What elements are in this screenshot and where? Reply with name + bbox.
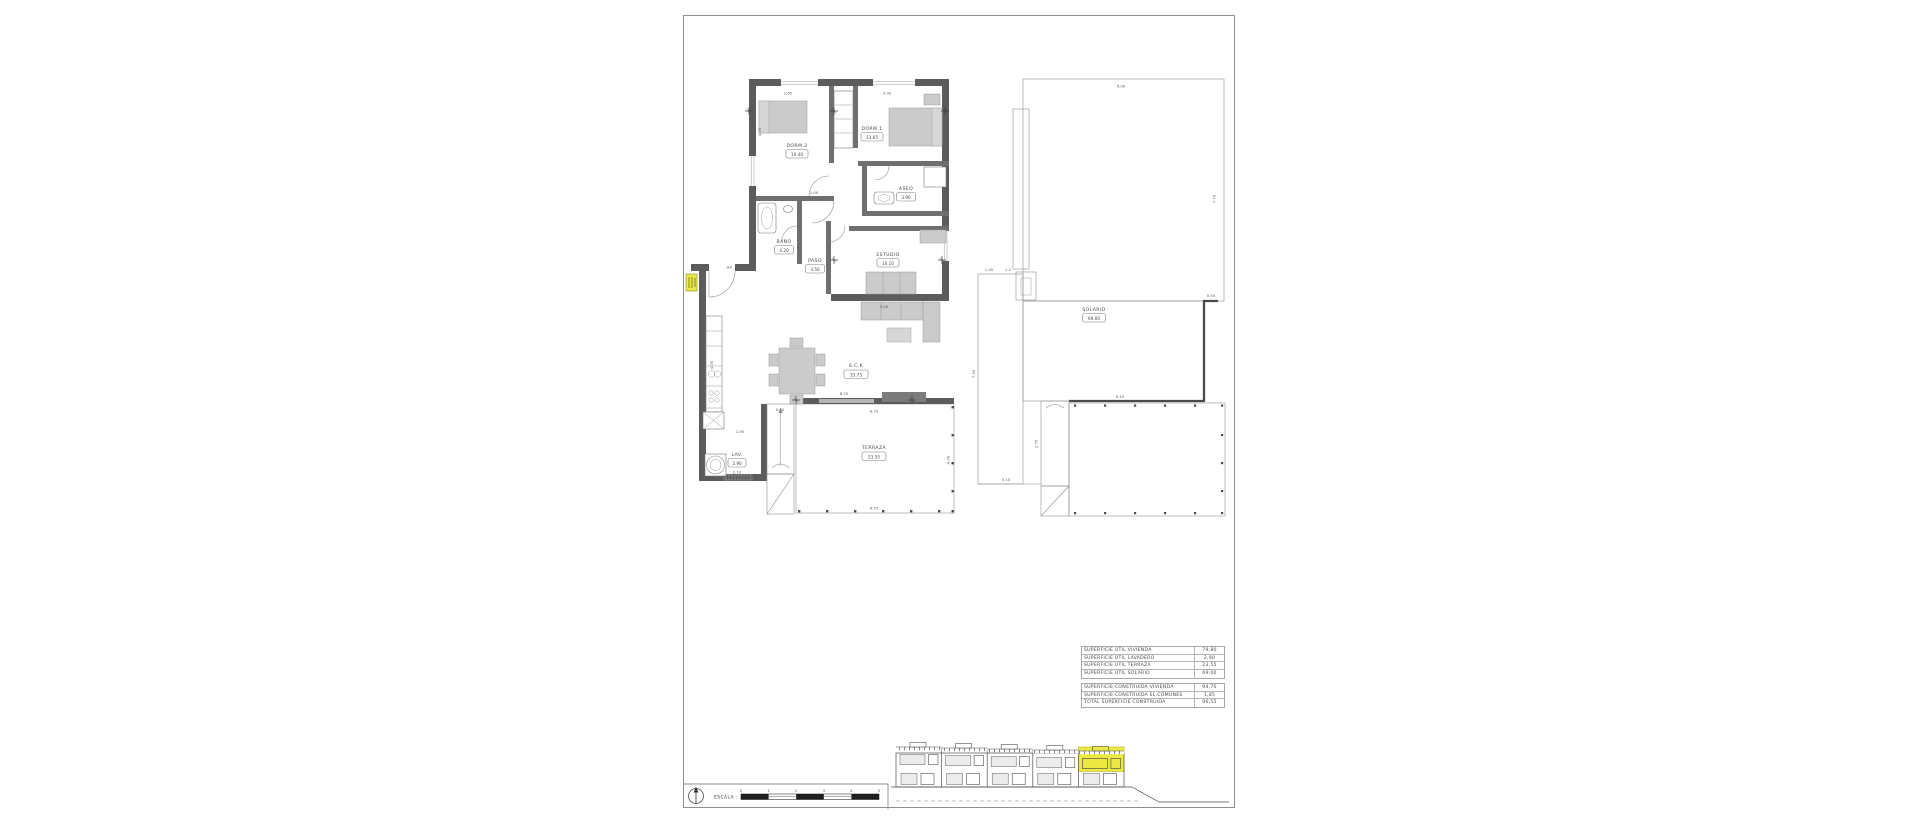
svg-text:4.20: 4.20: [779, 248, 789, 253]
street-elevation: [891, 743, 1229, 803]
drawing-sheet: DORM.2 10.40 DORM.1 13.65 ASEO 3.90: [683, 15, 1235, 808]
dim-estudio-bottom: 3.05: [880, 304, 889, 309]
lavadero-fixtures: [703, 412, 726, 476]
solario-left-strip: [978, 274, 1023, 484]
scale-bar-block: ESCALA : 0 1 2 3 4 5: [684, 784, 888, 809]
table-row: SUPERFICIE ÚTIL VIVIENDA 79,80: [1082, 647, 1224, 655]
svg-text:3.90: 3.90: [901, 195, 911, 200]
left-floor-plan: DORM.2 10.40 DORM.1 13.65 ASEO 3.90: [686, 79, 954, 514]
dim-dorm2-depth: 4.05: [757, 127, 762, 136]
table-superficie-construida: SUPERFICIE CONSTRUIDA VIVIENDA 94,70 SUP…: [1081, 683, 1225, 708]
svg-text:LAV.: LAV.: [731, 452, 742, 458]
svg-text:3: 3: [823, 788, 826, 793]
chimney-box: [1016, 272, 1036, 300]
kitchen-counter: [706, 316, 722, 428]
dim-parapet: 0.50: [1207, 293, 1216, 298]
window-top-right: [873, 79, 915, 86]
room-label-terraza: TERRAZA 23.55: [861, 445, 887, 461]
svg-text:BAÑO: BAÑO: [777, 238, 792, 245]
svg-text:TERRAZA: TERRAZA: [861, 445, 887, 451]
dim-roof-top: 6.90: [1117, 84, 1126, 89]
svg-text:33.75: 33.75: [850, 372, 862, 377]
svg-text:0: 0: [740, 788, 743, 793]
table-row: SUPERFICIE ÚTIL SOLARIO 69,00: [1082, 670, 1224, 678]
north-arrow-icon: [689, 787, 704, 804]
entry-unit-marker: [686, 274, 697, 291]
table-row: SUPERFICIE ÚTIL TERRAZA 23,55: [1082, 662, 1224, 670]
dim-sck-bottom: 6.70: [840, 391, 849, 396]
svg-text:1: 1: [767, 788, 770, 793]
table-superficie-util: SUPERFICIE ÚTIL VIVIENDA 79,80 SUPERFICI…: [1081, 646, 1225, 679]
room-label-dorm1: DORM.1 13.65: [861, 126, 883, 141]
dim-stairs-side: 1.10: [760, 415, 765, 424]
dim-terrace-top: 6.10: [1116, 394, 1125, 399]
dim-left-height: 7.50: [971, 369, 976, 378]
svg-text:DORM.2: DORM.2: [786, 143, 807, 149]
svg-text:5: 5: [878, 788, 881, 793]
window-left: [749, 156, 756, 186]
sck-sofa: [861, 302, 940, 342]
dim-terraza-bottom: 6.75: [870, 506, 879, 511]
dim-top-left: 2.65: [784, 91, 793, 96]
svg-text:4: 4: [850, 788, 853, 793]
svg-text:ESTUDIO: ESTUDIO: [876, 252, 899, 258]
room-label-lav: LAV. 2.90 2.10: [728, 452, 746, 475]
svg-text:2: 2: [795, 788, 798, 793]
dim-lav-below: 2.10: [733, 470, 742, 475]
stairs-ground: [767, 404, 794, 514]
svg-text:DORM.1: DORM.1: [861, 126, 882, 132]
room-label-dorm2: DORM.2 10.40: [786, 143, 808, 158]
dim-terraza-top: 8.70: [870, 409, 879, 414]
elevation-unit-2: [942, 744, 988, 788]
closet: [834, 91, 853, 148]
room-label-bano: BAÑO 4.20: [775, 238, 794, 254]
dim-hall-width: 1.00: [810, 190, 819, 195]
elevation-unit-3: [987, 745, 1033, 788]
graphic-scale-bar: 0 1 2 3 4 5: [740, 788, 881, 800]
dim-pantry: 1.95: [736, 429, 745, 434]
svg-text:3.50: 3.50: [810, 267, 820, 272]
room-label-sck: S.C.K 33.75: [844, 363, 868, 379]
svg-text:69.00: 69.00: [1088, 316, 1100, 321]
svg-text:10.10: 10.10: [882, 261, 894, 266]
dim-notch-b: 1.2: [1005, 267, 1012, 272]
roof-area: [1023, 79, 1224, 301]
elevation-unit-1: [896, 743, 942, 785]
roof-plan-dimensions: 6.90 7.70 0.50 7.50 1.40 1.2 3.10 2.75 6…: [971, 84, 1217, 483]
table-row: SUPERFICIE CONSTRUIDA EL.COMUNES 1,85: [1082, 692, 1224, 700]
svg-text:23.55: 23.55: [868, 454, 880, 459]
nightstand: [924, 94, 940, 105]
party-wall-void: [1013, 109, 1029, 269]
roof-lower-terrace: [1069, 403, 1225, 516]
svg-text:2.90: 2.90: [732, 461, 742, 466]
dim-kitchen-run: 4.05: [709, 360, 714, 369]
svg-text:PASO: PASO: [808, 258, 822, 264]
roof-plan: SOLARIO 69.00 6.90 7.70 0.50 7.50 1.40 1…: [971, 79, 1225, 516]
svg-text:10.40: 10.40: [791, 152, 803, 157]
room-label-aseo: ASEO 3.90: [897, 186, 916, 201]
svg-text:ASEO: ASEO: [899, 186, 913, 192]
elevation-unit-4: [1033, 746, 1079, 788]
room-label-paso: PASO 3.50: [806, 258, 825, 273]
dim-roof-right: 7.70: [1212, 194, 1217, 203]
room-label-estudio: ESTUDIO 10.10: [876, 252, 899, 267]
dim-stairs-top: 0.90: [776, 407, 785, 412]
svg-text:13.65: 13.65: [866, 135, 878, 140]
dim-notch-a: 1.40: [985, 267, 994, 272]
bano-fixtures: [758, 203, 793, 233]
table-row: TOTAL SUPERFICIE CONSTRUIDA 96,55: [1082, 699, 1224, 707]
solario-area: [1023, 301, 1204, 401]
window-top-left: [781, 79, 818, 86]
dim-terraza-right: 4.00: [946, 455, 951, 464]
svg-text:SOLARIO: SOLARIO: [1082, 307, 1105, 313]
dining-set: [769, 338, 825, 404]
table-row: SUPERFICIE CONSTRUIDA VIVIENDA 94,70: [1082, 684, 1224, 692]
elevation-ground: [891, 787, 1229, 802]
scale-label: ESCALA :: [714, 795, 738, 801]
table-row: SUPERFICIE ÚTIL LAVADERO 2,90: [1082, 655, 1224, 663]
page-background: DORM.2 10.40 DORM.1 13.65 ASEO 3.90: [0, 0, 1920, 820]
dim-bottom-left: 3.10: [1002, 477, 1011, 482]
dim-top-right: 3.00: [883, 91, 892, 96]
dim-roof-stairs: 2.75: [1034, 439, 1039, 448]
dim-entry-door: .80: [726, 265, 733, 270]
svg-text:S.C.K: S.C.K: [849, 363, 864, 369]
room-label-solario: SOLARIO 69.00: [1082, 307, 1105, 322]
furniture: [703, 91, 946, 476]
stairs-roof: [1041, 401, 1069, 516]
